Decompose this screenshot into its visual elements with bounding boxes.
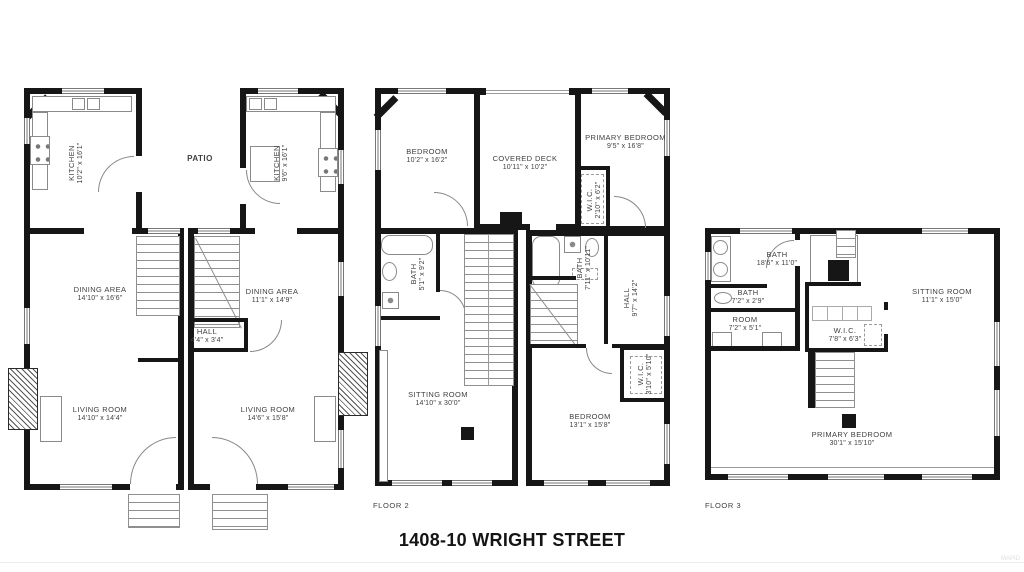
opening [130,484,176,490]
room-label-bedroom-front: BEDROOM 10'2" x 16'2" [377,142,477,168]
sink [249,98,262,110]
window [664,296,670,336]
window [392,480,442,486]
window [994,322,1000,366]
window [338,150,344,184]
bathtub [532,236,560,288]
floor-plan-sheet: { "title": "1408-10 WRIGHT STREET", "wat… [0,0,1024,572]
room-label-living-left: LIVING ROOM 14'10" x 14'4" [40,400,160,426]
toilet [382,262,397,281]
window [994,390,1000,436]
window [606,480,650,486]
wall [805,282,861,286]
window [828,474,884,480]
window [922,474,972,480]
wall [604,236,608,348]
window [922,228,968,234]
room-label-primary-bedroom-f2: PRIMARY BEDROOM 9'5" x 16'8" [563,128,688,154]
sink [72,98,85,110]
window [60,484,112,490]
ledge [379,350,388,482]
divider [0,562,1024,563]
deck-step [500,212,522,224]
watermark: MAPID [1001,556,1020,562]
patio-label: PATIO [178,154,222,163]
floor2-label: FLOOR 2 [373,501,409,510]
stair-rail [488,234,489,386]
entry-steps [128,494,180,528]
stairs [815,352,855,408]
sink [264,98,277,110]
fireplace [338,352,368,416]
room-label-wic-upper: W.I.C. 2'10" x 6'2" [583,170,603,230]
window [62,88,104,94]
stairs [464,234,514,386]
sink [382,292,399,309]
sink [87,98,100,110]
room-label-hall-f2: HALL 9'7" x 14'2" [620,268,640,328]
room-label-primary-bedroom-f3: PRIMARY BEDROOM 30'1" x 15'10" [772,425,932,451]
deck-rail [478,93,577,94]
floor3-label: FLOOR 3 [705,501,741,510]
stairs [836,230,856,258]
wall [705,346,800,351]
room-label-dining-right: DINING AREA 11'1" x 14'9" [212,282,332,308]
window [728,474,788,480]
window [148,228,180,234]
stove-icon [318,148,338,177]
opening [136,156,142,192]
window [740,228,792,234]
room-label-kitchen-left: KITCHEN 10'2" x 16'1" [64,120,86,206]
opening [84,228,132,234]
deck-rail [478,90,577,91]
room-label-sitting-room-f3: SITTING ROOM 11'1" x 15'0" [882,282,1002,308]
window [288,484,334,490]
wall [620,346,624,402]
window [24,308,30,344]
fireplace [8,368,38,430]
window [338,430,344,468]
deck-post [478,88,486,95]
wall [138,358,184,362]
room-label-kitchen-right: KITCHEN 9'6" x 16'1" [269,120,291,206]
opening [255,228,297,234]
room-label-bath-left: BATH 5'1" x 9'2" [407,244,427,304]
sill-line [711,467,994,468]
window [664,424,670,464]
window [375,306,381,346]
stove-icon [30,136,50,165]
wall [188,348,246,352]
wall [526,344,586,348]
wall [188,318,246,322]
room-label-wic-lower: W.I.C. 3'10" x 5'10" [634,344,654,404]
room-label-wic-f3: W.I.C. 7'8" x 6'3" [785,322,905,346]
window [258,88,298,94]
window [198,228,230,234]
wall [526,276,576,280]
window [705,252,711,280]
window [338,262,344,296]
wall [375,316,440,320]
shower-block [828,260,849,281]
wall [606,166,610,232]
opening [240,168,246,204]
window [452,480,492,486]
room-label-living-right: LIVING ROOM 14'6" x 15'8" [208,400,328,426]
room-label-hall: HALL 4'4" x 3'4" [167,324,247,346]
room-label-sitting-room-f2: SITTING ROOM 14'10" x 30'0" [378,385,498,411]
opening [210,484,256,490]
utility-block [461,427,474,440]
room-label-dining-left: DINING AREA 14'10" x 16'6" [40,280,160,306]
entry-steps [212,494,268,530]
window [544,480,588,486]
closet-shelves [812,306,872,321]
wall [808,352,815,408]
window [24,118,30,144]
page-title: 1408-10 WRIGHT STREET [0,530,1024,551]
window [592,88,628,94]
room-label-bath-small: BATH 7'2" x 2'9" [688,285,808,307]
window [398,88,446,94]
room-label-bedroom-rear: BEDROOM 13'1" x 15'8" [530,407,650,433]
